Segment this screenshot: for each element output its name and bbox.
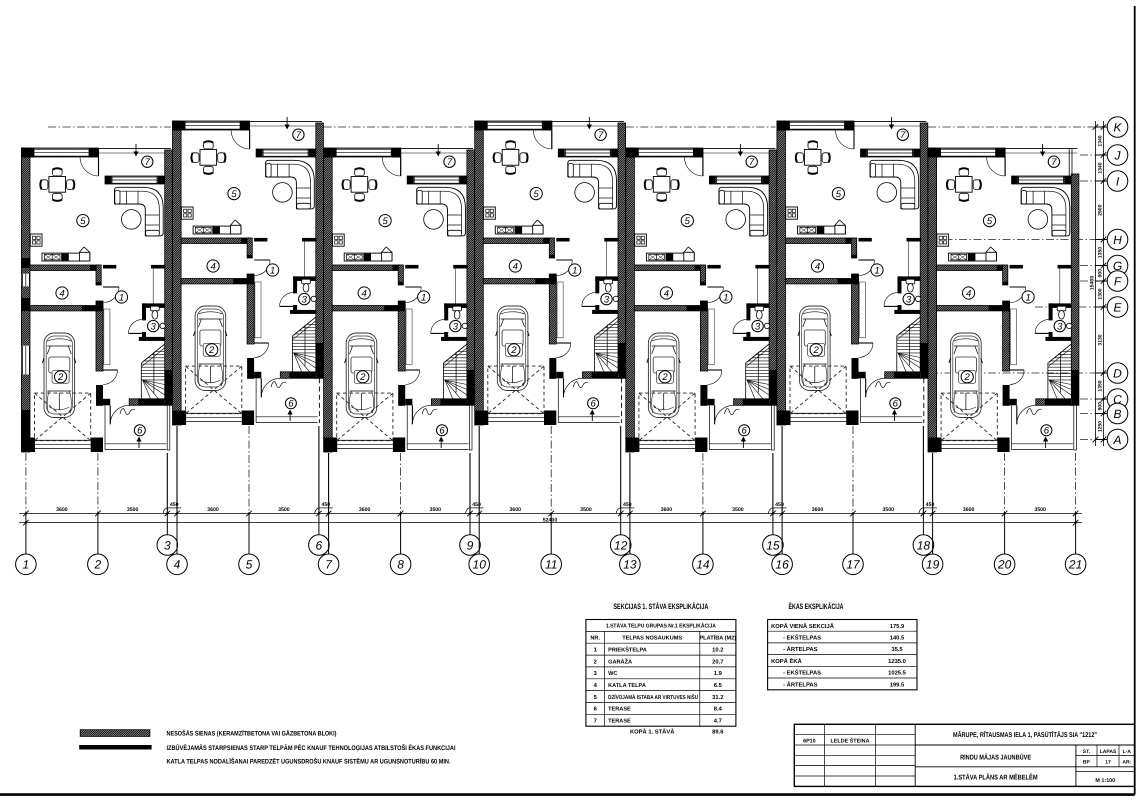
svg-text:5: 5 (836, 189, 842, 200)
svg-text:PLATĪBA (M2): PLATĪBA (M2) (699, 635, 736, 642)
svg-text:4: 4 (174, 558, 181, 572)
svg-text:6: 6 (742, 426, 748, 437)
svg-text:2: 2 (94, 558, 102, 572)
svg-text:15400: 15400 (1090, 276, 1096, 291)
svg-text:11: 11 (545, 558, 557, 572)
svg-text:15: 15 (766, 538, 780, 552)
svg-text:1340: 1340 (1098, 162, 1104, 173)
svg-text:450: 450 (321, 502, 330, 508)
svg-text:1: 1 (119, 292, 124, 303)
svg-text:3600: 3600 (207, 507, 219, 513)
svg-text:IZBŪVĒJAMĀS STARPSIENAS STARP: IZBŪVĒJAMĀS STARPSIENAS STARP TELPĀM PĒC… (167, 744, 456, 752)
svg-text:1: 1 (270, 265, 275, 276)
svg-text:RINDU MĀJAS JAUNBŪVE: RINDU MĀJAS JAUNBŪVE (960, 754, 1031, 762)
svg-text:1235.0: 1235.0 (888, 658, 906, 665)
svg-text:6: 6 (137, 426, 143, 437)
svg-text:1: 1 (723, 292, 728, 303)
svg-text:1: 1 (874, 265, 879, 276)
svg-text:3500: 3500 (430, 507, 442, 513)
svg-text:1340: 1340 (1098, 135, 1104, 146)
svg-text:5: 5 (80, 216, 86, 227)
svg-text:5: 5 (231, 189, 237, 200)
svg-text:3: 3 (755, 322, 761, 333)
svg-text:GARĀŽA: GARĀŽA (608, 657, 632, 665)
svg-text:2: 2 (964, 372, 971, 383)
svg-text:20: 20 (997, 558, 1012, 572)
svg-text:450: 450 (623, 502, 632, 508)
svg-text:450: 450 (926, 502, 935, 508)
svg-text:7: 7 (598, 130, 604, 141)
svg-text:20.7: 20.7 (712, 658, 723, 665)
svg-text:E: E (1113, 300, 1122, 314)
svg-text:- ĀRTELPAS: - ĀRTELPAS (783, 681, 817, 688)
svg-text:TELPAS NOSAUKUMS: TELPAS NOSAUKUMS (622, 636, 682, 642)
svg-text:L-A: L-A (1123, 749, 1132, 755)
svg-text:8.4: 8.4 (714, 706, 723, 713)
svg-text:2900: 2900 (1098, 204, 1104, 215)
svg-text:2: 2 (510, 345, 517, 356)
svg-text:19: 19 (926, 558, 940, 572)
svg-text:6: 6 (288, 399, 294, 410)
svg-text:4.7: 4.7 (714, 719, 722, 725)
svg-text:3500: 3500 (278, 507, 290, 513)
svg-text:4: 4 (966, 288, 971, 299)
svg-text:140.5: 140.5 (890, 635, 905, 642)
svg-text:3: 3 (906, 295, 912, 306)
svg-text:1350: 1350 (1098, 380, 1104, 391)
svg-text:18: 18 (917, 538, 931, 552)
svg-text:450: 450 (170, 502, 179, 508)
svg-text:3500: 3500 (580, 507, 592, 513)
svg-text:3600: 3600 (56, 507, 68, 513)
svg-text:1025.5: 1025.5 (888, 670, 907, 677)
svg-text:ST.: ST. (1083, 749, 1091, 755)
svg-text:1.STĀVA PLĀNS AR MĒBELĒM: 1.STĀVA PLĀNS AR MĒBELĒM (954, 774, 1038, 782)
svg-text:3500: 3500 (1034, 507, 1046, 513)
svg-text:3: 3 (1057, 322, 1063, 333)
svg-text:12: 12 (614, 538, 628, 552)
svg-text:3: 3 (453, 322, 459, 333)
svg-text:7: 7 (447, 157, 453, 168)
svg-text:6: 6 (439, 426, 445, 437)
svg-text:3500: 3500 (732, 507, 744, 513)
svg-text:3: 3 (164, 538, 171, 552)
svg-text:2: 2 (208, 345, 215, 356)
svg-text:KOPĀ VIENĀ SEKCIJĀ: KOPĀ VIENĀ SEKCIJĀ (771, 623, 835, 630)
svg-text:3600: 3600 (359, 507, 371, 513)
svg-text:WC: WC (608, 671, 617, 677)
svg-text:1: 1 (1025, 292, 1030, 303)
svg-text:1.9: 1.9 (714, 670, 723, 677)
svg-text:450: 450 (775, 502, 784, 508)
svg-text:8: 8 (397, 558, 404, 572)
svg-text:89.6: 89.6 (712, 729, 724, 736)
svg-text:K: K (1113, 120, 1122, 134)
svg-text:7: 7 (1051, 157, 1057, 168)
svg-text:175.9: 175.9 (890, 623, 905, 630)
svg-text:TERASE: TERASE (608, 719, 631, 725)
svg-text:5: 5 (382, 216, 388, 227)
svg-text:KOPĀ ĒKĀ: KOPĀ ĒKĀ (771, 658, 802, 665)
svg-text:6: 6 (1044, 426, 1050, 437)
svg-text:LELDE ŠTEINA: LELDE ŠTEINA (831, 738, 870, 745)
svg-text:1250: 1250 (1098, 421, 1104, 432)
svg-text:PRIEKŠTELPA: PRIEKŠTELPA (608, 645, 647, 653)
svg-text:F: F (1114, 274, 1122, 288)
svg-text:6: 6 (316, 538, 323, 552)
svg-text:6: 6 (590, 399, 596, 410)
svg-text:3600: 3600 (812, 507, 824, 513)
svg-text:6: 6 (893, 399, 899, 410)
svg-text:2: 2 (359, 372, 366, 383)
svg-text:TERASE: TERASE (608, 707, 631, 713)
svg-text:5: 5 (987, 216, 993, 227)
svg-text:3600: 3600 (963, 507, 975, 513)
svg-text:3: 3 (604, 295, 610, 306)
svg-text:NESOŠĀS SIENAS (KERAMZĪTBETONA: NESOŠĀS SIENAS (KERAMZĪTBETONA VAI GĀZBE… (167, 730, 337, 738)
svg-text:5: 5 (246, 558, 253, 572)
svg-text:4: 4 (59, 288, 64, 299)
svg-text:900: 900 (1098, 269, 1104, 278)
svg-text:ĒKAS EKSPLIKĀCIJA: ĒKAS EKSPLIKĀCIJA (789, 602, 844, 611)
svg-text:D: D (1113, 366, 1122, 380)
svg-text:SEKCIJAS 1. STĀVA EKSPLIKĀCIJA: SEKCIJAS 1. STĀVA EKSPLIKĀCIJA (613, 602, 708, 611)
svg-text:31.2: 31.2 (712, 694, 723, 701)
svg-text:1300: 1300 (1098, 288, 1104, 299)
svg-text:1.STĀVA TELPU GRUPAS Nr.1 EKSP: 1.STĀVA TELPU GRUPAS Nr.1 EKSPLIKĀCIJA (606, 623, 716, 630)
svg-text:2: 2 (812, 345, 819, 356)
svg-text:16: 16 (775, 558, 789, 572)
svg-text:1: 1 (23, 558, 30, 572)
svg-text:900: 900 (1098, 402, 1104, 411)
svg-text:7: 7 (900, 130, 906, 141)
svg-text:BP: BP (1083, 760, 1091, 766)
svg-text:52400: 52400 (543, 518, 558, 524)
svg-text:21: 21 (1068, 558, 1082, 572)
svg-text:7: 7 (749, 157, 755, 168)
svg-text:199.5: 199.5 (890, 681, 905, 688)
svg-text:5: 5 (685, 216, 691, 227)
svg-text:6.5: 6.5 (714, 682, 723, 689)
svg-text:4: 4 (815, 261, 820, 272)
svg-text:J: J (1114, 148, 1122, 162)
svg-text:- EKŠTELPAS: - EKŠTELPAS (783, 669, 821, 677)
svg-text:450: 450 (472, 502, 481, 508)
svg-text:NR.: NR. (590, 636, 600, 642)
svg-text:2: 2 (57, 372, 64, 383)
svg-text:7: 7 (145, 157, 151, 168)
svg-text:3500: 3500 (127, 507, 139, 513)
svg-text:1350: 1350 (1098, 247, 1104, 258)
svg-text:17: 17 (1105, 760, 1111, 766)
svg-text:3600: 3600 (509, 507, 521, 513)
svg-text:3: 3 (151, 322, 157, 333)
svg-text:7: 7 (594, 719, 597, 725)
svg-text:B: B (1113, 407, 1121, 421)
svg-text:KOPĀ 1. STĀVĀ: KOPĀ 1. STĀVĀ (630, 729, 675, 736)
svg-text:3: 3 (302, 295, 308, 306)
svg-text:M 1:100: M 1:100 (1095, 778, 1115, 784)
svg-text:5: 5 (534, 189, 540, 200)
svg-text:A: A (1112, 433, 1121, 447)
svg-text:H: H (1113, 233, 1122, 247)
svg-text:- EKŠTELPAS: - EKŠTELPAS (783, 634, 821, 642)
svg-text:4: 4 (362, 288, 367, 299)
svg-text:1: 1 (421, 292, 426, 303)
svg-text:2: 2 (661, 372, 668, 383)
svg-text:4: 4 (664, 288, 669, 299)
svg-text:AR:: AR: (1122, 760, 1131, 766)
svg-text:17: 17 (846, 558, 861, 572)
svg-text:35.5: 35.5 (891, 646, 903, 653)
svg-text:4: 4 (210, 261, 215, 272)
svg-text:10.2: 10.2 (712, 646, 723, 653)
svg-text:2: 2 (594, 658, 597, 665)
svg-text:9: 9 (467, 538, 474, 552)
svg-text:3600: 3600 (661, 507, 673, 513)
svg-text:13: 13 (623, 558, 637, 572)
svg-text:LAPAS: LAPAS (1100, 749, 1117, 755)
svg-text:6P10: 6P10 (803, 739, 816, 745)
svg-text:KATLA TELPAS NODALĪŠANAI PARED: KATLA TELPAS NODALĪŠANAI PAREDZĒT UGUNSD… (167, 758, 451, 766)
svg-text:10: 10 (473, 558, 487, 572)
svg-text:7: 7 (296, 130, 302, 141)
svg-text:4: 4 (513, 261, 518, 272)
svg-text:MĀRUPE, RĪTAUSMAS IELA 1, PASŪ: MĀRUPE, RĪTAUSMAS IELA 1, PASŪTĪTĀJS SIA… (953, 731, 1097, 739)
svg-text:KATLA TELPA: KATLA TELPA (608, 683, 646, 689)
svg-text:1: 1 (572, 265, 577, 276)
svg-text:3130: 3130 (1098, 334, 1104, 345)
svg-text:14: 14 (696, 558, 710, 572)
svg-text:DZĪVOJAMĀ ISTABA AR VIRTUVES N: DZĪVOJAMĀ ISTABA AR VIRTUVES NIŠU (608, 693, 698, 701)
svg-text:3500: 3500 (882, 507, 894, 513)
svg-text:- ĀRTELPAS: - ĀRTELPAS (783, 646, 817, 653)
